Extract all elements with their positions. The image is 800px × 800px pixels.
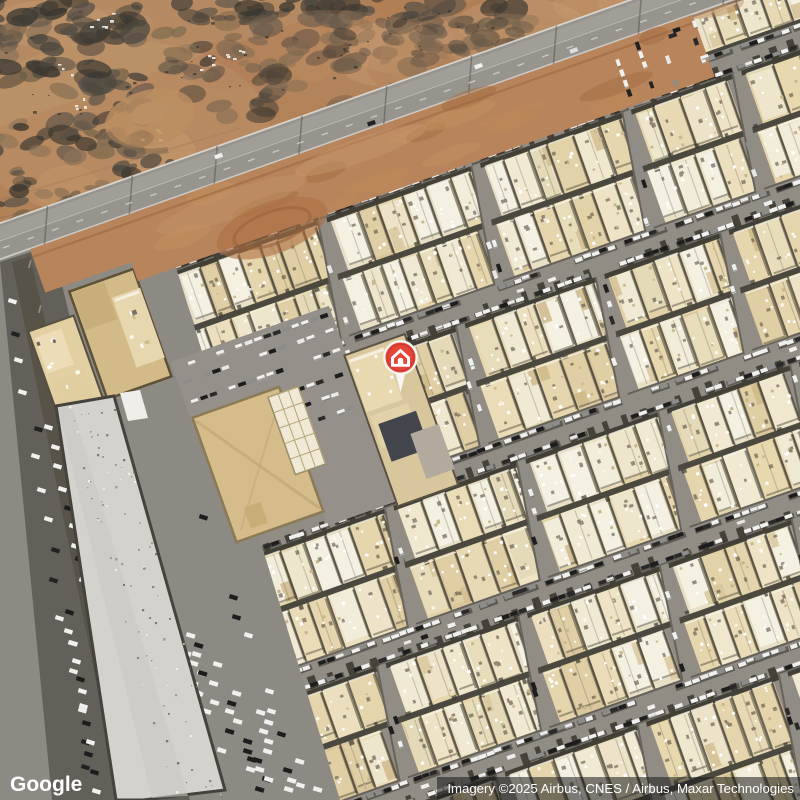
svg-text:Imagery ©2025 Airbus, CNES / A: Imagery ©2025 Airbus, CNES / Airbus, Max… (447, 781, 794, 796)
svg-text:Google: Google (10, 773, 82, 796)
